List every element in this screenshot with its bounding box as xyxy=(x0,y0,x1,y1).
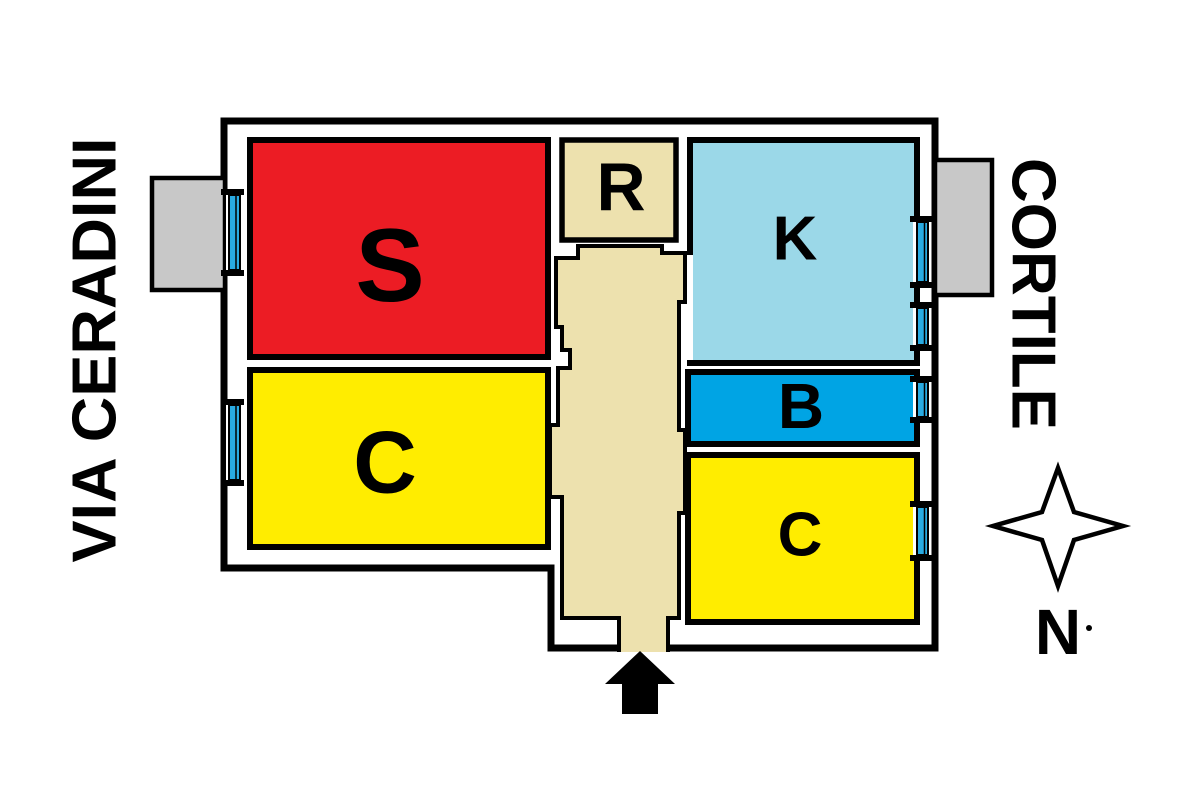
street-label-cortile: CORTILE xyxy=(999,158,1068,430)
compass-north-label: N xyxy=(1035,596,1081,668)
room-label-s: S xyxy=(355,208,424,324)
window-pane-icon xyxy=(917,382,928,417)
balcony-right xyxy=(935,160,992,295)
window-pane-icon xyxy=(229,405,240,480)
street-label-via-ceradini: VIA CERADINI xyxy=(61,138,130,563)
window-pane-icon xyxy=(917,222,928,282)
room-label-k: K xyxy=(773,205,818,274)
room-label-c-left: C xyxy=(353,413,417,512)
compass-dot xyxy=(1086,625,1092,631)
balcony-left xyxy=(152,178,225,290)
window-pane-icon xyxy=(917,507,928,555)
room-label-r: R xyxy=(596,149,645,225)
window-pane-icon xyxy=(917,308,928,345)
room-label-c-right: C xyxy=(778,501,823,570)
room-label-b: B xyxy=(778,370,824,442)
compass-star-icon xyxy=(993,468,1123,586)
entrance-arrow-icon xyxy=(605,651,675,714)
floorplan-svg: N S C R K B C VIA CERADINI CORTILE xyxy=(0,0,1187,803)
floorplan-page: N S C R K B C VIA CERADINI CORTILE xyxy=(0,0,1187,803)
corridor xyxy=(550,246,685,652)
window-pane-icon xyxy=(229,195,240,270)
